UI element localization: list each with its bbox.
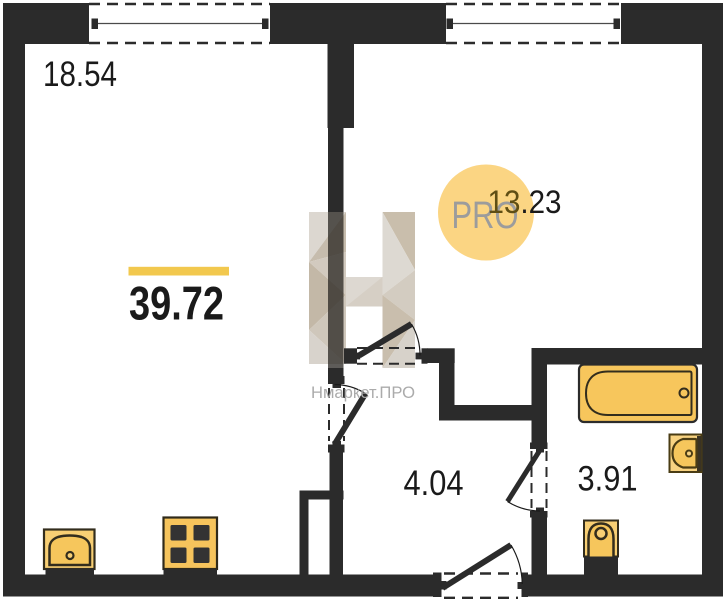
svg-text:3.91: 3.91 [578,460,638,499]
svg-text:13.23: 13.23 [488,184,562,220]
svg-text:4.04: 4.04 [404,464,464,503]
svg-text:18.54: 18.54 [43,55,117,94]
svg-text:39.72: 39.72 [129,277,224,330]
svg-text:Нмаркет.ПРО: Нмаркет.ПРО [311,383,415,402]
